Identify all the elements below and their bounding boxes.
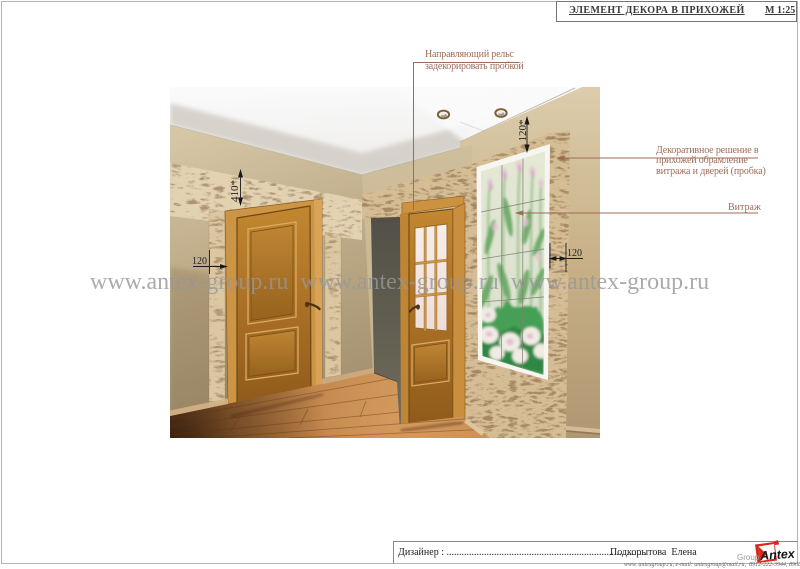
svg-text:410*: 410*: [229, 180, 241, 202]
svg-text:120*: 120*: [517, 120, 529, 142]
